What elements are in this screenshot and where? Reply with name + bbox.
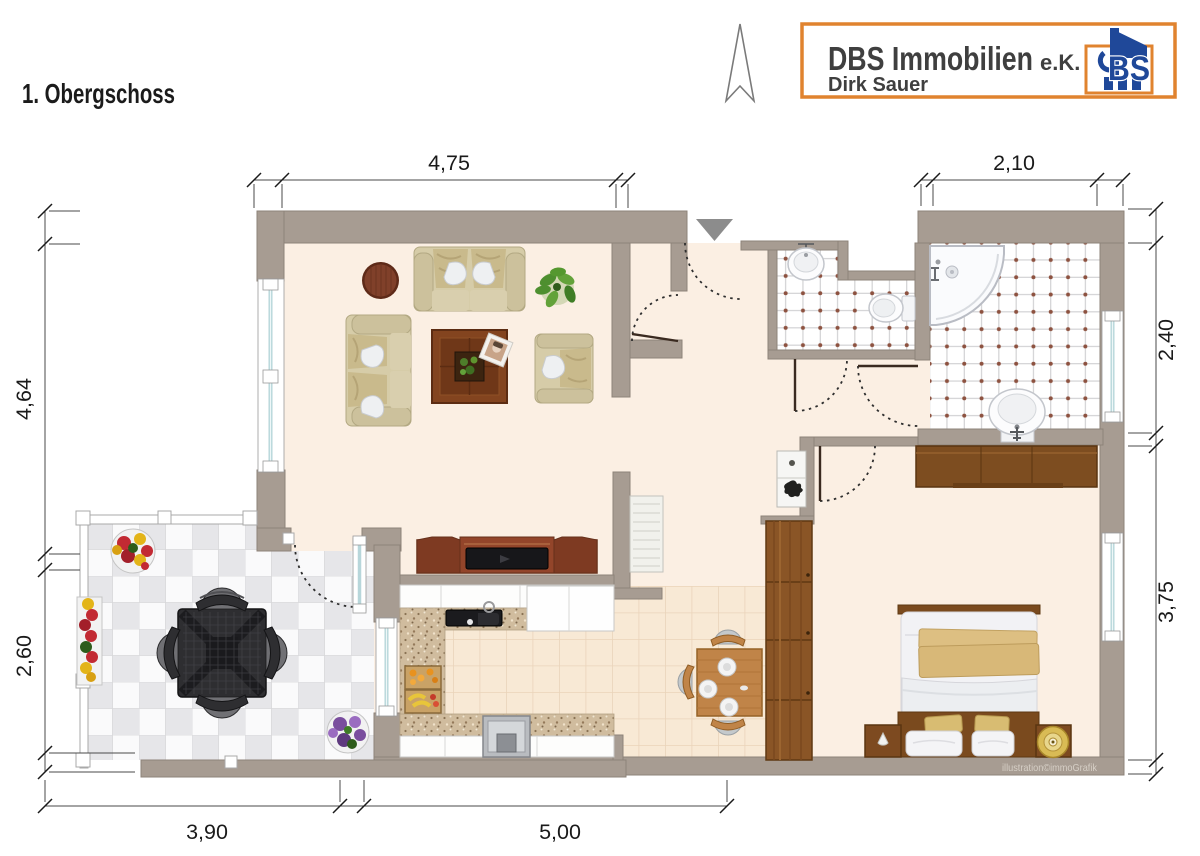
svg-text:1. Obergschoss: 1. Obergschoss	[22, 78, 175, 109]
svg-text:BS: BS	[1108, 50, 1150, 88]
svg-text:e.K.: e.K.	[1040, 50, 1080, 75]
svg-text:3,75: 3,75	[1154, 581, 1178, 623]
svg-text:4,75: 4,75	[428, 151, 470, 175]
svg-text:3,90: 3,90	[186, 820, 228, 844]
svg-text:2,10: 2,10	[993, 151, 1035, 175]
svg-text:Dirk Sauer: Dirk Sauer	[828, 74, 928, 96]
svg-text:4,64: 4,64	[12, 378, 36, 420]
svg-text:DBS Immobilien: DBS Immobilien	[828, 40, 1033, 77]
svg-text:5,00: 5,00	[539, 820, 581, 844]
svg-text:2,60: 2,60	[12, 635, 36, 677]
svg-text:2,40: 2,40	[1154, 319, 1178, 361]
svg-text:illustration©immoGrafik: illustration©immoGrafik	[1002, 762, 1098, 774]
